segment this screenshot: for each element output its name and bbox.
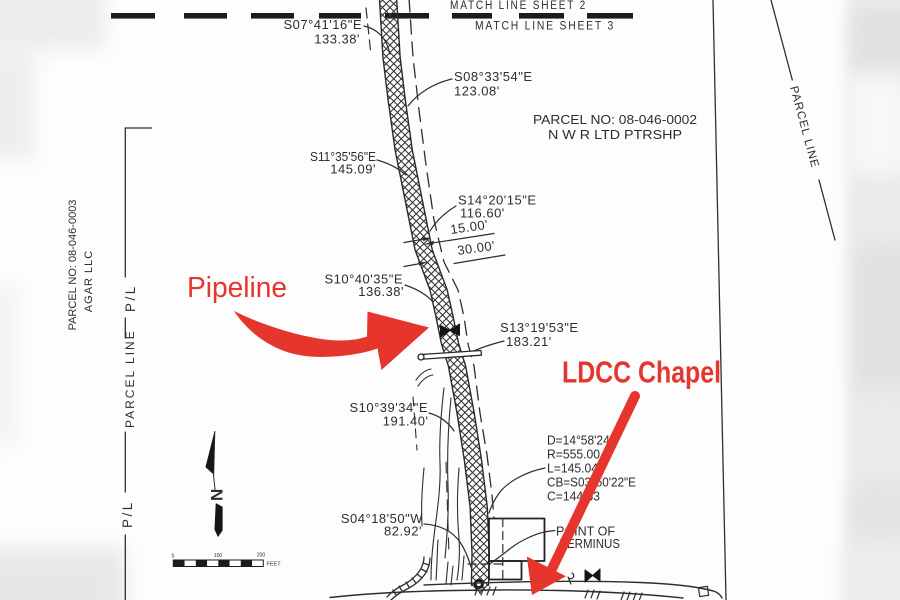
svg-text:N: N: [208, 489, 227, 501]
svg-text:P/L: P/L: [120, 500, 135, 528]
svg-text:30.00': 30.00': [456, 238, 496, 258]
svg-text:PARCEL LINE: PARCEL LINE: [123, 329, 137, 428]
svg-text:133.38': 133.38': [314, 32, 360, 47]
svg-text:191.40': 191.40': [383, 414, 429, 429]
svg-text:D=14°58'24": D=14°58'24": [547, 433, 614, 448]
svg-text:145.09': 145.09': [330, 162, 376, 177]
svg-text:S13°19'53"E: S13°19'53"E: [500, 320, 579, 335]
svg-text:183.21': 183.21': [506, 334, 552, 349]
svg-text:PARCEL NO: 08-046-0002: PARCEL NO: 08-046-0002: [533, 113, 697, 127]
svg-text:Pipeline: Pipeline: [187, 272, 287, 304]
svg-text:PARCEL NO: 08-046-0003: PARCEL NO: 08-046-0003: [67, 200, 79, 331]
svg-text:AGAR LLC: AGAR LLC: [83, 250, 95, 312]
svg-text:MATCH LINE SHEET 2: MATCH LINE SHEET 2: [450, 0, 587, 12]
svg-text:15.00': 15.00': [449, 217, 489, 237]
svg-text:P/L: P/L: [123, 284, 138, 312]
svg-text:136.38': 136.38': [358, 284, 404, 299]
svg-text:S07°41'16"E: S07°41'16"E: [283, 17, 362, 32]
svg-text:S08°33'54"E: S08°33'54"E: [454, 69, 533, 84]
svg-text:0: 0: [172, 554, 175, 560]
svg-text:LDCC Chapel: LDCC Chapel: [562, 356, 721, 390]
svg-text:82.92': 82.92': [384, 524, 422, 539]
svg-text:N W R LTD PTRSHP: N W R LTD PTRSHP: [548, 128, 682, 142]
svg-text:123.08': 123.08': [454, 84, 500, 99]
svg-text:200: 200: [257, 553, 266, 559]
svg-text:MATCH LINE SHEET 3: MATCH LINE SHEET 3: [475, 21, 615, 33]
svg-text:PARCEL LINE: PARCEL LINE: [787, 85, 820, 170]
svg-text:FEET: FEET: [267, 562, 282, 568]
svg-text:L=145.04: L=145.04: [547, 461, 598, 476]
svg-text:100: 100: [214, 553, 223, 559]
svg-text:R=555.00: R=555.00: [547, 447, 600, 462]
